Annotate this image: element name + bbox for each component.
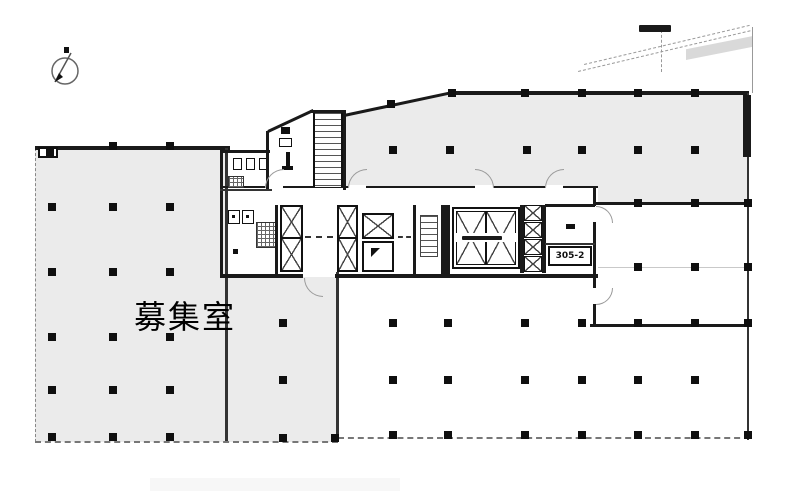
elevator-shaft — [280, 205, 303, 239]
column-marker — [166, 142, 174, 150]
column-marker — [48, 433, 56, 441]
wall-bottom-left — [35, 441, 338, 443]
column-marker — [634, 199, 642, 207]
column-marker — [331, 434, 339, 442]
column-marker — [109, 386, 117, 394]
column-marker — [523, 146, 531, 154]
unit-room-divider — [545, 243, 595, 245]
column-marker — [109, 268, 117, 276]
column-marker — [744, 319, 752, 327]
fixture-dot — [246, 215, 249, 218]
column-marker — [634, 431, 642, 439]
column-marker — [634, 89, 642, 97]
toilet-stall — [246, 158, 255, 170]
fixture-block — [286, 152, 290, 166]
unit-room-fixture — [566, 224, 575, 229]
fixture-dot — [233, 249, 238, 254]
column-marker — [389, 146, 397, 154]
toilet-wall-top — [220, 150, 270, 153]
core-wall-left — [220, 150, 223, 277]
column-marker — [578, 376, 586, 384]
duct-shaft-hatch — [256, 222, 276, 248]
column-marker — [446, 146, 454, 154]
wall-diagonal-entry — [267, 109, 314, 133]
column-marker — [691, 376, 699, 384]
shaded-area-upper-right — [598, 187, 748, 203]
column-marker — [48, 268, 56, 276]
ramp-annotation-blob — [639, 25, 671, 32]
column-marker — [521, 319, 529, 327]
column-marker — [109, 142, 117, 150]
core-wall-bottom-a — [220, 274, 303, 278]
small-shaft — [524, 256, 542, 272]
ramp-grid-line — [661, 30, 662, 72]
core-thick-bar — [441, 205, 450, 275]
column-marker — [166, 433, 174, 441]
shaded-area-middle — [228, 277, 338, 442]
wall-left-room-top — [35, 146, 230, 150]
column-marker — [166, 268, 174, 276]
column-marker — [634, 319, 642, 327]
service-stair — [420, 215, 438, 257]
column-marker — [691, 319, 699, 327]
stair-wall-right — [343, 112, 346, 190]
column-marker — [109, 433, 117, 441]
toilet-stall — [233, 158, 242, 170]
fixture-dot — [232, 215, 235, 218]
column-marker — [578, 431, 586, 439]
column-marker — [691, 146, 699, 154]
lower-faint-strip — [150, 478, 400, 491]
stair-triangle — [371, 248, 380, 257]
column-marker — [166, 333, 174, 341]
vacancy-room-label: 募集室 — [134, 292, 236, 338]
door-arc — [596, 206, 613, 223]
fixture-box — [279, 138, 292, 147]
column-marker — [389, 376, 397, 384]
column-marker — [279, 434, 287, 442]
small-shaft — [524, 222, 542, 238]
column-marker — [691, 263, 699, 271]
column-marker — [744, 263, 752, 271]
elevator-hall-dash — [398, 236, 411, 238]
ramp-right-edge — [752, 27, 753, 93]
column-marker — [634, 376, 642, 384]
door-arc — [596, 288, 613, 305]
column-marker — [109, 203, 117, 211]
column-marker — [744, 431, 752, 439]
elevator-hall-dash — [305, 236, 333, 238]
tenant-split-line — [598, 267, 748, 268]
column-marker — [578, 319, 586, 327]
wall-left-dashed — [35, 148, 36, 442]
column-marker — [48, 203, 56, 211]
corner-closet-fill — [46, 149, 54, 156]
column-marker — [744, 199, 752, 207]
wall-middle-right — [336, 272, 339, 442]
column-marker — [521, 431, 529, 439]
column-marker — [521, 376, 529, 384]
column-marker — [444, 376, 452, 384]
toilet-fixture-hatch — [228, 176, 244, 188]
core-inner-wall — [275, 205, 278, 275]
toilet-wall-bottom — [220, 189, 272, 191]
elevator-shaft — [337, 205, 358, 239]
core-inner-wall — [413, 205, 416, 275]
small-shaft — [524, 239, 542, 255]
stairwell-treads — [313, 113, 343, 187]
core-wall-bottom-b — [335, 274, 598, 278]
ramp-strip — [686, 36, 753, 60]
small-shaft — [524, 205, 542, 221]
fixture-block — [281, 127, 290, 134]
machine-room-label-blob — [462, 236, 502, 240]
column-marker — [387, 100, 395, 108]
column-marker — [578, 146, 586, 154]
elevator-shaft — [280, 237, 303, 272]
column-marker — [166, 386, 174, 394]
column-marker — [48, 333, 56, 341]
column-marker — [691, 199, 699, 207]
column-marker — [634, 263, 642, 271]
column-marker — [578, 89, 586, 97]
column-marker — [444, 319, 452, 327]
column-marker — [279, 319, 287, 327]
wall-right-core-bar — [743, 95, 751, 157]
column-marker — [444, 431, 452, 439]
column-marker — [691, 89, 699, 97]
wall-bottom-right — [338, 437, 750, 439]
floor-plan-canvas: 305-2 募集室 — [0, 0, 787, 492]
column-marker — [166, 203, 174, 211]
compass-north-icon — [46, 40, 88, 92]
column-marker — [279, 376, 287, 384]
column-marker — [448, 89, 456, 97]
column-marker — [634, 146, 642, 154]
unit-number-label: 305-2 — [548, 246, 592, 266]
wall-top — [450, 91, 749, 95]
column-marker — [48, 386, 56, 394]
column-marker — [109, 333, 117, 341]
core-inner-wall — [542, 205, 546, 273]
column-marker — [389, 431, 397, 439]
column-marker — [389, 319, 397, 327]
wall-right-room-bottom — [590, 324, 748, 327]
unit-room-wall — [545, 204, 595, 207]
column-marker — [691, 431, 699, 439]
column-marker — [521, 89, 529, 97]
elevator-shaft — [362, 213, 394, 239]
wall-right-room-top — [595, 202, 748, 205]
elevator-shaft — [337, 237, 358, 272]
